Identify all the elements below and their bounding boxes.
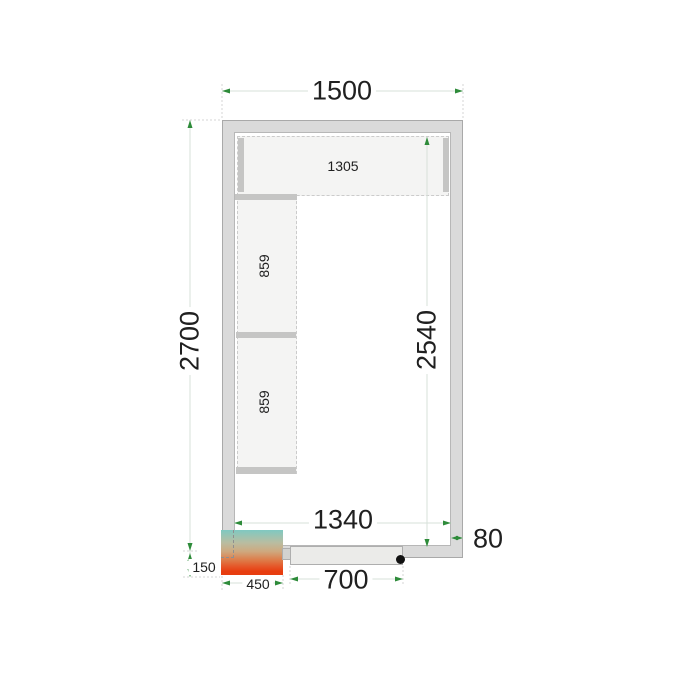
label-door-width: 700 [319,566,372,595]
shelf-bar-top [235,194,297,200]
shelf-bar-middle [236,332,296,338]
label-outer-width: 1500 [308,77,376,106]
label-unit-width: 450 [242,576,273,592]
shelf-support-left [238,138,244,192]
label-inner-depth: 2540 [413,306,442,374]
door-handle-dot [396,555,405,564]
label-inner-width: 1340 [309,506,377,535]
door-leaf [290,546,403,565]
label-shelf-upper: 859 [257,254,271,277]
label-shelf-lower: 859 [257,390,271,413]
label-outer-depth: 2700 [176,307,205,375]
diagram-canvas: { "diagram": { "type": "cold-room-floor-… [0,0,680,680]
label-wall-thickness: 80 [473,526,503,553]
label-top-shelf: 1305 [327,159,358,173]
shelf-bar-bottom [236,467,296,474]
shelf-support-right [443,138,449,192]
hidden-wall-outline [221,530,234,558]
label-unit-offset: 150 [188,559,219,575]
